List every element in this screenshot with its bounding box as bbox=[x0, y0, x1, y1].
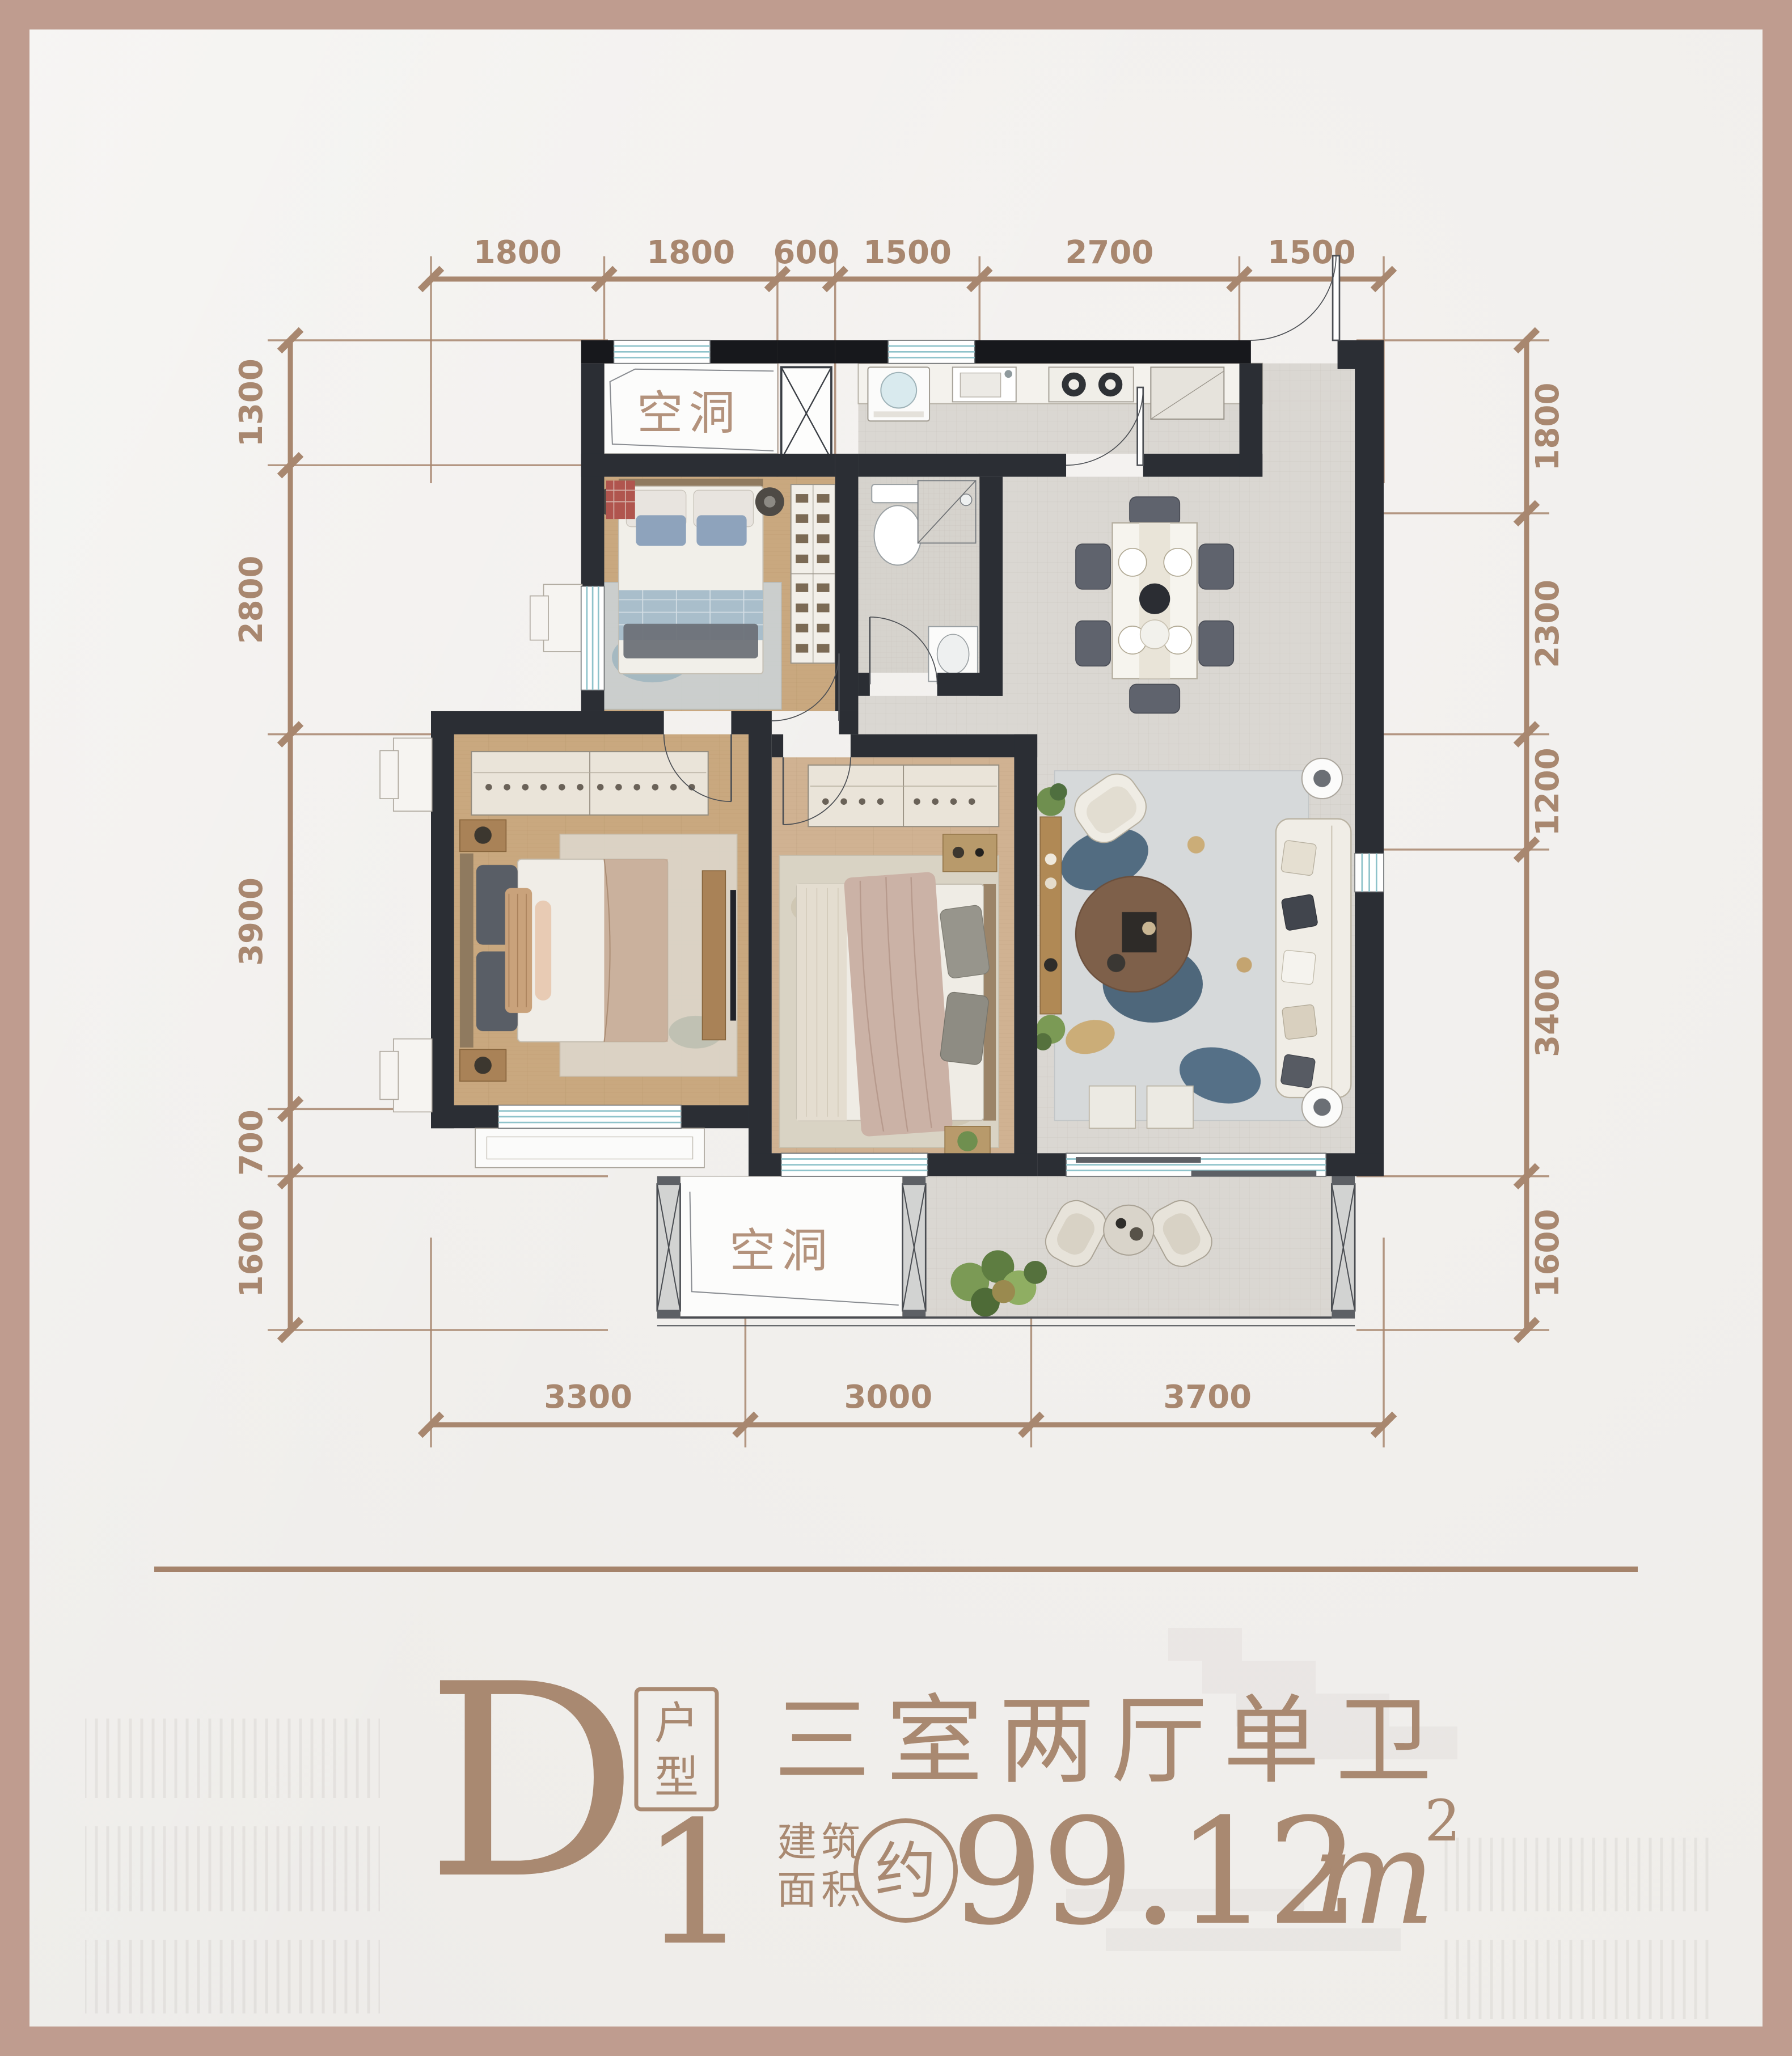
approx-char: 约 bbox=[875, 1836, 936, 1907]
svg-text:1800: 1800 bbox=[474, 234, 562, 271]
bedroom3-furniture bbox=[779, 765, 999, 1156]
tv-console bbox=[703, 871, 726, 1040]
unit-letter: D bbox=[425, 1627, 639, 1937]
void-label-top: 空洞 bbox=[637, 386, 741, 440]
floor-plan: 空洞 空洞 bbox=[380, 256, 1384, 1325]
svg-text:2300: 2300 bbox=[1529, 580, 1566, 668]
shaft-column bbox=[781, 367, 831, 459]
hall-floor bbox=[858, 696, 1003, 734]
unit-number: 1 bbox=[641, 1785, 749, 1983]
plaid-cushion bbox=[606, 480, 635, 519]
svg-text:1800: 1800 bbox=[1529, 383, 1566, 471]
window-balcony-slider bbox=[1066, 1153, 1326, 1176]
svg-text:1600: 1600 bbox=[233, 1209, 270, 1298]
master-headboard bbox=[460, 854, 474, 1048]
unit-type-char1: 户 bbox=[654, 1698, 699, 1749]
svg-text:2800: 2800 bbox=[233, 555, 270, 644]
svg-text:3000: 3000 bbox=[844, 1379, 932, 1416]
area-superscript: 2 bbox=[1425, 1788, 1461, 1854]
svg-text:1500: 1500 bbox=[863, 234, 952, 271]
svg-text:1300: 1300 bbox=[233, 358, 270, 447]
window-master-bottom bbox=[498, 1105, 681, 1129]
headline: 三室两厅单卫 bbox=[774, 1685, 1448, 1797]
unit-type-char2: 型 bbox=[654, 1752, 699, 1803]
area-unit: m bbox=[1311, 1801, 1436, 1954]
area-label-2: 面积 bbox=[777, 1867, 865, 1913]
ottoman bbox=[1089, 1086, 1135, 1129]
window-bedroom3-bottom bbox=[781, 1153, 928, 1176]
bedroom3-nightstand bbox=[943, 834, 997, 872]
window-bedroom2-left bbox=[581, 586, 605, 690]
svg-text:3300: 3300 bbox=[544, 1379, 632, 1416]
void-label-bottom: 空洞 bbox=[729, 1224, 833, 1278]
svg-text:3400: 3400 bbox=[1529, 969, 1566, 1057]
bay-window bbox=[475, 1128, 704, 1167]
divider-line bbox=[154, 1567, 1638, 1572]
area-label-1: 建筑 bbox=[777, 1819, 865, 1865]
svg-text:1800: 1800 bbox=[646, 234, 735, 271]
window-kitchen bbox=[888, 340, 975, 364]
toilet bbox=[872, 484, 924, 503]
svg-text:3700: 3700 bbox=[1163, 1379, 1252, 1416]
svg-text:700: 700 bbox=[233, 1109, 270, 1176]
svg-text:1200: 1200 bbox=[1529, 748, 1566, 836]
balcony-table bbox=[1104, 1205, 1153, 1255]
ottoman-2 bbox=[1147, 1086, 1193, 1129]
balcony-rail bbox=[657, 1318, 1355, 1325]
svg-text:1500: 1500 bbox=[1267, 234, 1356, 271]
svg-text:1600: 1600 bbox=[1529, 1209, 1566, 1298]
kitchen-cabinet bbox=[1151, 367, 1224, 419]
tv bbox=[730, 890, 736, 1020]
window-void-top bbox=[614, 340, 710, 364]
floorplan-canvas: 1800180060015002700150033003000370013002… bbox=[0, 0, 1792, 2056]
console-table bbox=[1040, 817, 1061, 1014]
svg-text:2700: 2700 bbox=[1065, 234, 1153, 271]
area-value: 99.12 bbox=[950, 1787, 1358, 1957]
svg-text:600: 600 bbox=[773, 234, 839, 271]
window-living-right bbox=[1355, 854, 1384, 892]
svg-text:3900: 3900 bbox=[233, 877, 270, 966]
living-room-furniture bbox=[1034, 758, 1351, 1128]
